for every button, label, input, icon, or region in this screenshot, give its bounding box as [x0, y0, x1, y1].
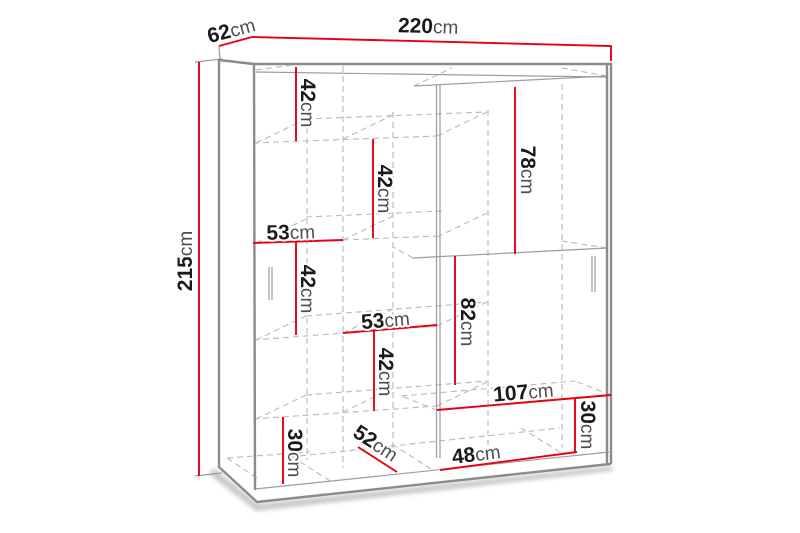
dim-label-52-depth: 52cm — [349, 421, 402, 467]
sliding-door-handle-right — [592, 256, 595, 292]
hidden-shelf-front-edges — [253, 136, 437, 419]
interior-structure — [195, 46, 609, 489]
dim-label-53-middle: 53cm — [360, 307, 411, 334]
wardrobe-outline — [219, 60, 611, 502]
dim-label-30-bottom-left: 30cm — [283, 429, 306, 478]
right-edge — [607, 64, 611, 463]
dim-label-30-bottom-right: 30cm — [576, 401, 599, 450]
dim-label-width: 220cm — [398, 14, 459, 39]
dim-label-height: 215cm — [174, 231, 197, 291]
dim-label-107-bottom-right: 107cm — [492, 378, 554, 406]
top-left-slant-edge — [219, 60, 254, 64]
dim-label-78-right-upper: 78cm — [516, 146, 539, 195]
dimension-labels: 220cm 62cm 215cm 42cm 42cm 53cm 42cm 53c… — [174, 13, 599, 477]
diagram-canvas: 220cm 62cm 215cm 42cm 42cm 53cm 42cm 53c… — [0, 0, 800, 533]
dimension-line-width-220 — [252, 37, 611, 61]
front-left-edge — [254, 64, 255, 489]
dim-label-42-top-left: 42cm — [296, 79, 319, 128]
dim-label-82-right-middle: 82cm — [456, 298, 479, 347]
right-middle-shelf — [413, 248, 607, 258]
right-top-shelf — [414, 76, 607, 86]
hidden-vertical-panels — [307, 66, 562, 468]
dim-label-53-left: 53cm — [266, 220, 315, 245]
wardrobe-dimension-diagram: 220cm 62cm 215cm 42cm 42cm 53cm 42cm 53c… — [0, 0, 800, 533]
sliding-door-handle-left — [269, 267, 272, 300]
dim-label-42-upper-middle: 42cm — [373, 165, 396, 214]
hidden-shelf-lines — [227, 64, 611, 481]
dim-label-42-lower-middle: 42cm — [374, 348, 397, 397]
center-divider — [437, 84, 441, 458]
dim-label-42-middle-left: 42cm — [296, 265, 319, 314]
interior-back-top-edge — [256, 72, 607, 77]
bottom-plinth-edge — [219, 464, 610, 502]
hidden-depth-diagonals-shelf4 — [256, 382, 487, 419]
dim-label-48-bottom: 48cm — [451, 440, 502, 469]
